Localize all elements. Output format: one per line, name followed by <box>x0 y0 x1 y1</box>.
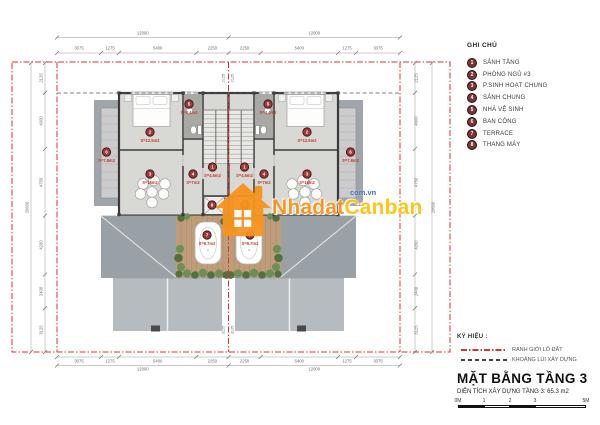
legend-item: 8THANG MÁY <box>467 140 592 152</box>
room-area-label: S=7.8m2 <box>98 158 115 163</box>
dim-label: 12000 <box>137 31 149 36</box>
legend-label: BAN CÔNG <box>483 119 517 125</box>
dim-label: 2400 <box>39 286 44 296</box>
room-number: 4 <box>192 172 195 177</box>
room-number: 1 <box>211 165 214 170</box>
symbol-row-lot-boundary: RANH GIỚI LÔ ĐẤT <box>457 345 595 355</box>
dim-label: 4750 <box>414 177 419 187</box>
dim-label: 3125 <box>39 325 44 335</box>
room-area-label: S=4.6m2 <box>204 173 221 178</box>
legend-number-badge: 7 <box>467 129 477 139</box>
scale-label: 2 <box>509 398 512 404</box>
dim-label: 3125 <box>414 325 419 335</box>
dim-label: 1275 <box>342 359 352 364</box>
room-number: 4 <box>263 172 266 177</box>
legend-label: THANG MÁY <box>483 142 520 148</box>
dim-label: 1275 <box>342 46 352 51</box>
room-number: 6 <box>105 150 108 155</box>
scale-segment <box>458 405 484 408</box>
room-number: 5 <box>188 102 191 107</box>
room-area-label: S=4.4m2 <box>260 110 277 115</box>
dim-label: 12000 <box>308 31 320 36</box>
dim-label: 5400 <box>153 359 163 364</box>
room-area-label: S=7.8m2 <box>342 158 359 163</box>
dim-label: 4200 <box>414 240 419 250</box>
room-number: 2 <box>149 130 152 135</box>
room-area-label: S=4.6m2 <box>236 173 253 178</box>
room-area-label: S=4.4m2 <box>181 110 198 115</box>
room-area-label: S=16m2 <box>142 180 158 185</box>
scale-segment <box>535 405 586 408</box>
lot-boundary-symbol <box>461 349 507 351</box>
dim-label: 3075 <box>373 359 383 364</box>
dim-label: 2125 <box>414 73 419 83</box>
dim-label: 4750 <box>39 177 44 187</box>
symbol-label: RANH GIỚI LÔ ĐẤT <box>512 347 563 353</box>
dim-label: 1275 <box>105 359 115 364</box>
legend-label: NHÀ VỆ SINH <box>483 107 524 113</box>
legend-item: 6BAN CÔNG <box>467 116 592 128</box>
dim-label: 12000 <box>308 367 320 372</box>
title-block: KÝ HIỆU : RANH GIỚI LÔ ĐẤT KHOẢNG LÙI XÂ… <box>457 334 595 395</box>
dim-label: 5400 <box>295 46 305 51</box>
watermark-domain: com.vn <box>350 188 376 197</box>
dim-label: 1275 <box>105 46 115 51</box>
dim-label: 2125 <box>231 74 235 82</box>
scale-label: 5M <box>583 398 590 404</box>
legend-number-badge: 6 <box>467 117 477 127</box>
dim-label: 4200 <box>39 240 44 250</box>
legend-label: P.SINH HOẠT CHUNG <box>483 83 548 89</box>
legend-label: TERRACE <box>483 131 513 137</box>
legend-label: SẢNH TẦNG <box>483 60 520 66</box>
drawing-subtitle: DIỆN TÍCH XÂY DỰNG TẦNG 3: 65.3 m2 <box>457 389 595 395</box>
legend-item: 3P.SINH HOẠT CHUNG <box>467 81 592 93</box>
dim-label: 5400 <box>295 359 305 364</box>
scale-label: 3 <box>534 398 537 404</box>
dim-label: 2250 <box>208 359 218 364</box>
scale-label: 0M <box>455 398 462 404</box>
symbols-heading: KÝ HIỆU : <box>457 334 595 340</box>
scale-segment <box>484 405 510 408</box>
legend-item: 5NHÀ VỆ SINH <box>467 104 592 116</box>
dim-label: 2400 <box>414 286 419 296</box>
room-area-label: S=12.5m2 <box>140 138 160 143</box>
dim-label: 3075 <box>74 46 84 51</box>
legend-number-badge: 5 <box>467 105 477 115</box>
scale-label: 1 <box>483 398 486 404</box>
legend-label: SẢNH CHUNG <box>483 95 525 101</box>
dim-label: 4000 <box>39 116 44 126</box>
watermark-text: NhadatCanban <box>272 196 423 220</box>
dim-label: 5400 <box>153 46 163 51</box>
scale-bar: 0M1235M <box>458 398 590 412</box>
watermark: NhadatCanban com.vn <box>210 180 410 250</box>
room-number: 3 <box>149 172 152 177</box>
legend-title: GHI CHÚ <box>467 42 592 49</box>
dim-label: 12000 <box>137 367 149 372</box>
dim-label: 3075 <box>373 46 383 51</box>
room-area-label: S=12.5m2 <box>297 138 317 143</box>
watermark-name-1: Nhadat <box>272 196 344 219</box>
dim-label: 3125 <box>231 326 235 334</box>
legend-number-badge: 2 <box>467 70 477 80</box>
dim-label: 2250 <box>208 46 218 51</box>
legend-panel: GHI CHÚ 1SẢNH TẦNG2PHÒNG NGỦ #33P.SINH H… <box>467 42 592 151</box>
legend-item: 7TERRACE <box>467 128 592 140</box>
legend-item: 1SẢNH TẦNG <box>467 57 592 69</box>
dim-label: 2125 <box>39 73 44 83</box>
dim-label: 2250 <box>240 46 250 51</box>
legend-item: 2PHÒNG NGỦ #3 <box>467 69 592 81</box>
setback-symbol <box>461 359 507 361</box>
dim-label: 20600 <box>431 201 436 213</box>
legend-label: PHÒNG NGỦ #3 <box>483 72 531 78</box>
room-number: 2 <box>306 130 309 135</box>
room-number: 6 <box>349 150 352 155</box>
drawing-title: MẶT BẰNG TẦNG 3 <box>457 371 595 386</box>
dim-label: 3125 <box>222 326 226 334</box>
scale-segment <box>510 405 535 408</box>
watermark-name-2: Canban <box>344 196 422 219</box>
legend-number-badge: 4 <box>467 93 477 103</box>
symbol-row-setback: KHOẢNG LÙI XÂY DỰNG <box>457 355 595 365</box>
legend-number-badge: 8 <box>467 140 477 150</box>
room-number: 5 <box>267 102 270 107</box>
symbol-label: KHOẢNG LÙI XÂY DỰNG <box>512 357 577 363</box>
legend-items: 1SẢNH TẦNG2PHÒNG NGỦ #33P.SINH HOẠT CHUN… <box>467 57 592 151</box>
legend-number-badge: 1 <box>467 58 477 68</box>
room-number: 1 <box>243 165 246 170</box>
dim-label: 20600 <box>25 201 30 213</box>
dim-label: 2125 <box>222 74 226 82</box>
room-area-label: S=7m2 <box>186 180 200 185</box>
dim-label: 3075 <box>74 359 84 364</box>
legend-number-badge: 3 <box>467 81 477 91</box>
dim-label: 4000 <box>414 116 419 126</box>
floorplan-sheet: 3075307512751275540054002250225022502250… <box>0 0 600 425</box>
room-number: 3 <box>306 172 309 177</box>
room-number: 7 <box>206 233 209 238</box>
legend-item: 4SẢNH CHUNG <box>467 92 592 104</box>
watermark-house-icon <box>214 182 272 238</box>
dim-label: 2250 <box>240 359 250 364</box>
